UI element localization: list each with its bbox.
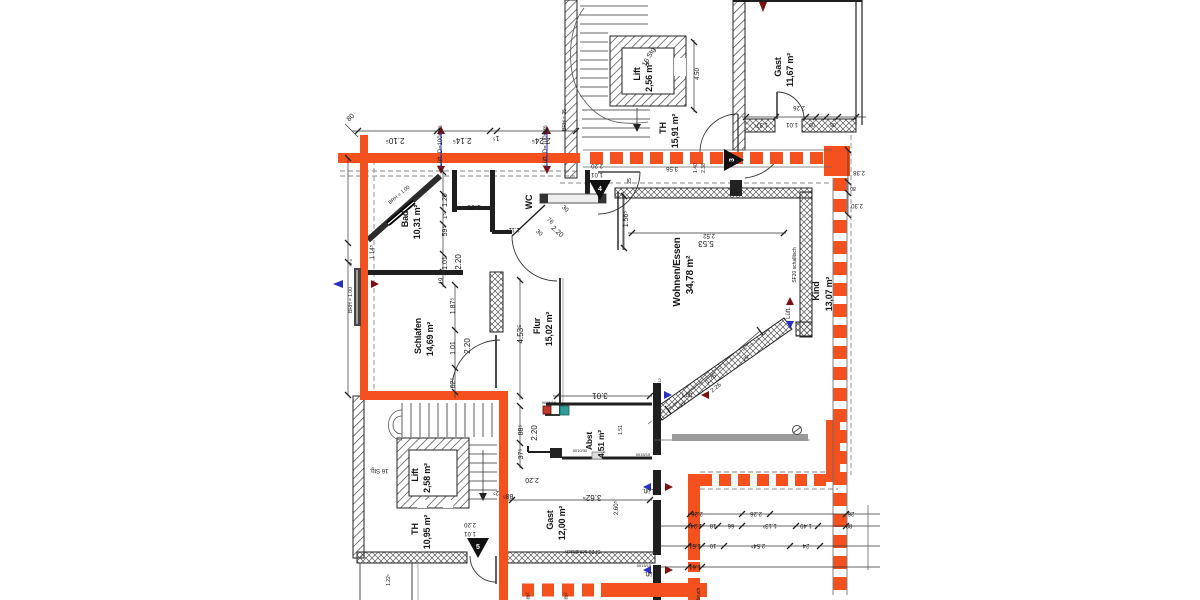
annotation-67: 3.62⁵ [583,493,602,502]
room-area-lift-bottom: 2,58 m² [422,463,432,493]
annotation-85: 10 [709,542,716,548]
section-marker-4-label: 4 [598,186,602,193]
annotation-91: bruch [696,588,702,600]
annotation-12: 2.38 [701,163,707,173]
annotation-10: 25 [627,178,633,184]
floorplan-page: 3 4 5 Lift 2,56 m² TH 15,91 m² Gast 11,6… [0,0,1200,600]
wall-wohnen-right [800,192,812,337]
annotation-49: 88⁵ [503,492,514,499]
annotation-71: Lüft. [644,570,656,576]
room-label-th-bottom: TH [410,523,420,535]
room-label-kind: Kind [811,281,821,300]
annotation-1: 2.14⁵ [453,136,472,145]
annotation-42: 62⁵ [450,378,457,389]
room-label-gast-bottom: Gast [545,510,555,529]
annotation-27: 59⁵ [442,226,449,237]
room-area-bad: 10,31 m² [412,205,422,240]
annotation-87: 24 [802,542,809,548]
annotation-0: 2.10⁵ [386,136,405,145]
wall-th-bottom-left [353,396,364,558]
annotation-59: SF12 [657,377,662,387]
annotation-70: Lüft. [642,487,654,493]
annotation-78: 1.24⁵ [687,522,702,529]
annotation-19: 09 [809,121,815,127]
wall-th-top-left [565,0,577,178]
room-label-flur: Flur [532,317,542,334]
annotation-11: 1.40 [693,163,699,173]
annotation-75: 2.26 [691,510,703,516]
annotation-18: 1.01 [786,121,798,127]
annotation-21: 2.38 [853,169,865,175]
annotation-40: 1.87⁵ [450,298,457,315]
annotation-54: SF20 schalltsch [792,247,798,283]
lintel-symbol [540,194,606,203]
annotation-2: 1⁵ [493,134,500,141]
annotation-5: Lüft. D=100mm [438,125,444,166]
annotation-62: 1.51 [618,425,624,435]
wall-schlafen-pillar [490,272,503,332]
fixture-box-red [543,406,551,414]
annotation-29: 2.20 [454,254,463,270]
annotation-79: 18 [709,522,716,528]
annotation-82: 1.49 [800,522,812,528]
annotation-76: 2.26 [750,510,762,516]
room-area-abst: 4,51 m² [596,430,606,458]
annotation-25: 1.20 [442,193,449,207]
wall-gast-right-1 [653,383,661,455]
annotation-46: 2.20 [530,425,539,441]
room-label-lift-bottom: Lift [410,468,420,481]
annotation-89: m² [526,593,532,600]
annotation-65: 0015/15 [636,452,651,457]
annotation-20: 08 [830,121,836,127]
balcony-edge [672,434,808,441]
room-label-bad: Bad [400,211,410,227]
annotation-72: 2.20 [464,521,476,527]
annotation-52: 1.56⁵ [623,211,630,228]
annotation-31: 1.00 [467,203,481,210]
room-label-th-top: TH [658,122,668,134]
annotation-13: 4.50 [695,68,701,80]
annotation-81: 1.13³ [763,522,777,528]
annotation-14: BRH = 35 [562,109,568,131]
annotation-47: 37⁵ [518,449,525,460]
annotation-17: 1.37¹ [754,121,768,127]
annotation-64: 0010/30 [573,448,588,453]
room-label-wohnen-essen: Wohnen/Essen [672,237,683,306]
wall-wohnen-top [615,188,812,198]
floorplan-canvas: 3 4 5 Lift 2,56 m² TH 15,91 m² Gast 11,6… [0,0,1200,600]
annotation-77: 26 [847,510,854,516]
fixture-box-teal [560,406,569,415]
annotation-61: Lüft. [786,307,792,319]
annotation-69: SF20 schalltsch [565,548,601,554]
room-area-gast-top: 11,67 m² [785,53,795,87]
annotation-39: SF4 [348,259,353,267]
annotation-84: 1.51 [689,542,701,548]
section-marker-3-label: 3 [729,158,736,162]
section-marker-5-label: 5 [476,544,480,551]
stair-flight-label-bottom: 16 Stg. [369,467,388,473]
annotation-45: 88⁵ [518,425,525,436]
annotation-23: 2.30 [851,202,863,208]
annotation-88: 1.61 [689,563,701,569]
annotation-86: 2.54⁵ [750,542,765,549]
annotation-30: 19 [439,277,445,284]
room-label-wc: WC [524,194,534,209]
annotation-9: 3.56 [666,165,678,171]
room-label-lift-top: Lift [632,67,642,80]
annotation-15: 2.52 [703,232,715,238]
orange-wall-mid-horizontal [360,391,508,400]
annotation-28: 1.01 [442,256,449,270]
annotation-16: 2.26 [793,104,805,110]
annotation-80: 66 [727,522,734,528]
annotation-60: Lüft. [682,393,694,399]
room-area-th-top: 15,91 m² [670,114,680,149]
annotation-22: 80 [850,185,856,191]
wall-th-bottom-band [357,552,467,563]
annotation-43: 2.20 [463,338,472,354]
annotation-90: m² [564,593,570,600]
annotation-48: 2.20 [525,476,539,483]
annotation-6: Lüft. D=100mm [543,125,549,166]
orange-wall-left [360,135,368,397]
annotation-73: 1.01 [464,530,476,536]
room-area-wohnen-essen: 34,78 m² [685,255,696,294]
annotation-8: 1.01 [591,171,603,177]
annotation-41: 1.01 [450,341,457,355]
annotation-66: 0015/15 [637,563,652,568]
room-area-schlafen: 14,69 m² [425,322,435,357]
annotation-68: 2.60⁵ [613,500,620,515]
annotation-26: 1⁵ [442,213,449,219]
room-label-gast-top: Gast [773,57,783,76]
wall-th-top-right [733,0,745,150]
annotation-63: 0015/16 [542,400,557,405]
room-area-th-bottom: 10,95 m² [422,515,432,550]
annotation-53: 5.53 [698,239,714,248]
room-area-flur: 15,02 m² [544,312,554,347]
annotation-83: 88 [845,522,852,528]
room-area-gast-bottom: 12,00 m² [557,506,567,541]
annotation-37: BRH = 1.00 [348,287,354,313]
annotation-50: 2⁵ [493,489,499,496]
annotation-32: 1.11⁵ [506,226,520,233]
annotation-38: 1.14⁵ [369,244,376,259]
room-label-schlafen: Schlafen [413,318,423,354]
room-area-kind: 13,07 m² [824,277,834,312]
annotation-51: 3.01 [592,391,608,400]
annotation-44: 4.53⁵ [516,325,525,344]
canvas-background [0,0,1200,600]
annotation-7: 2.20 [591,162,603,168]
annotation-74: 1.22⁵ [386,574,392,586]
